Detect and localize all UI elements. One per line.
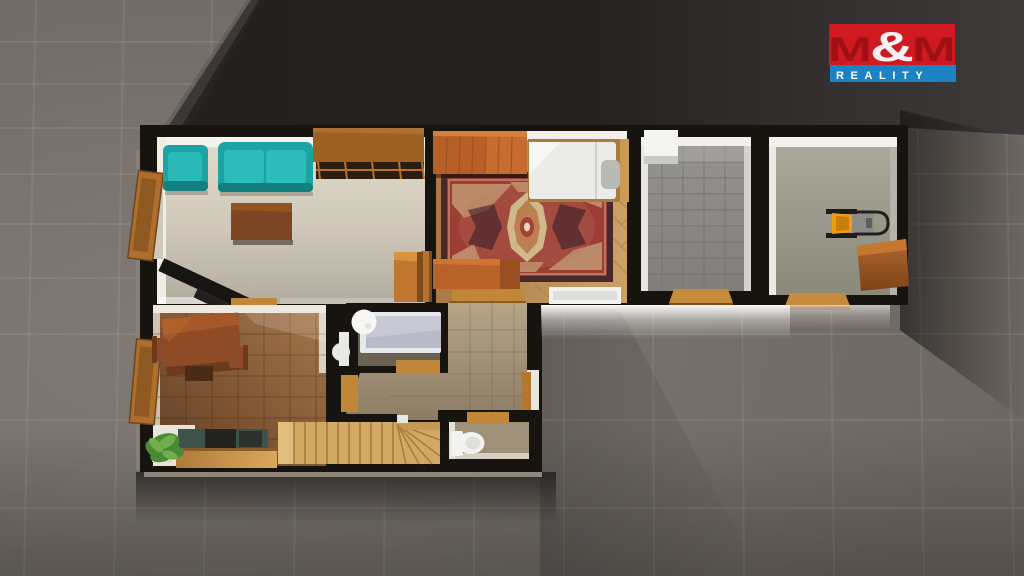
svg-text:&: & (870, 24, 914, 71)
svg-text:REALITY: REALITY (836, 70, 929, 82)
svg-text:M: M (828, 31, 872, 69)
svg-text:M: M (912, 31, 956, 69)
